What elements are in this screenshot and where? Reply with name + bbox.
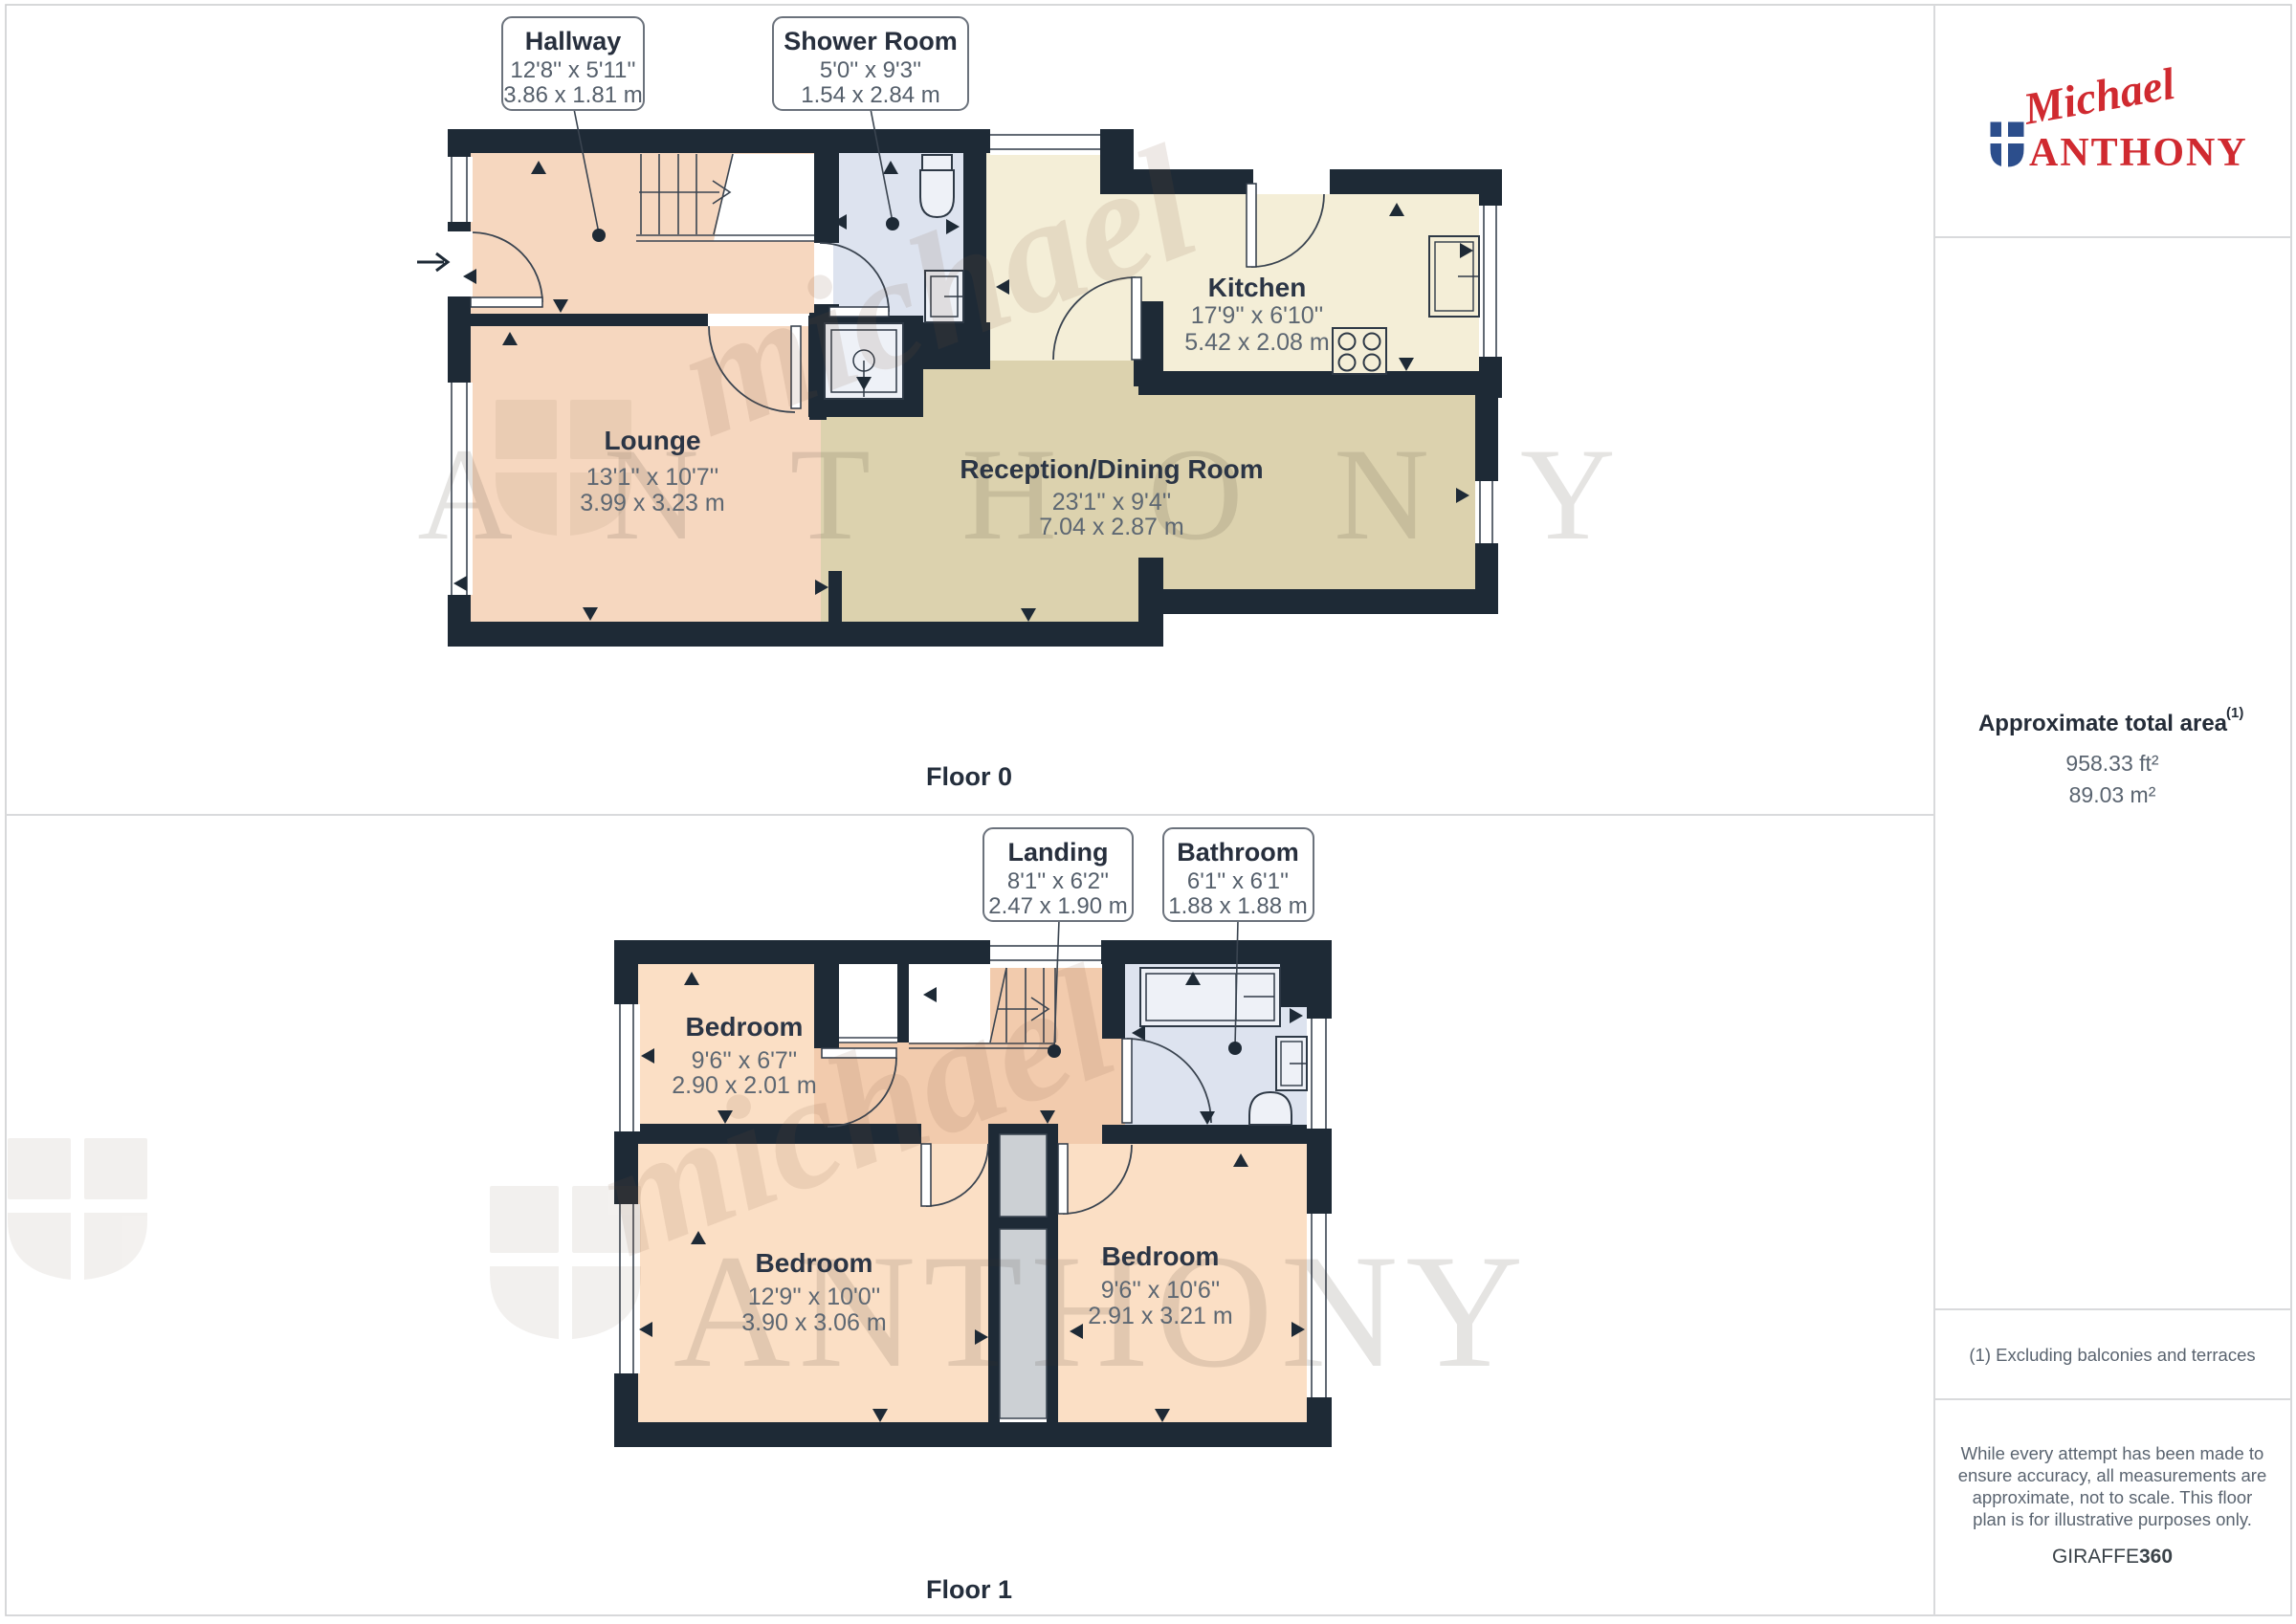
svg-text:plan is for illustrative purpo: plan is for illustrative purposes only. xyxy=(1973,1509,2252,1529)
svg-text:3.99 x 3.23 m: 3.99 x 3.23 m xyxy=(580,490,724,516)
svg-text:3.90 x 3.06 m: 3.90 x 3.06 m xyxy=(741,1309,886,1336)
svg-text:17'9'' x 6'10'': 17'9'' x 6'10'' xyxy=(1191,302,1323,329)
svg-text:While every attempt has been m: While every attempt has been made to xyxy=(1961,1443,2264,1463)
svg-text:958.33 ft²: 958.33 ft² xyxy=(2065,751,2159,776)
svg-text:1.88 x 1.88 m: 1.88 x 1.88 m xyxy=(1168,893,1307,919)
svg-text:7.04 x 2.87 m: 7.04 x 2.87 m xyxy=(1039,514,1183,540)
svg-text:6'1'' x 6'1'': 6'1'' x 6'1'' xyxy=(1187,868,1289,894)
svg-text:Bedroom: Bedroom xyxy=(756,1248,873,1278)
svg-text:approximate, not to scale. Thi: approximate, not to scale. This floor xyxy=(1973,1487,2253,1507)
svg-text:12'9'' x 10'0'': 12'9'' x 10'0'' xyxy=(748,1284,880,1310)
svg-text:13'1'' x 10'7'': 13'1'' x 10'7'' xyxy=(586,464,718,491)
svg-text:9'6'' x 10'6'': 9'6'' x 10'6'' xyxy=(1101,1277,1221,1304)
svg-text:Kitchen: Kitchen xyxy=(1208,273,1307,302)
svg-text:GIRAFFE360: GIRAFFE360 xyxy=(2052,1546,2173,1568)
svg-text:5'0'' x 9'3'': 5'0'' x 9'3'' xyxy=(820,57,921,83)
svg-text:8'1'' x 6'2'': 8'1'' x 6'2'' xyxy=(1007,868,1109,894)
svg-text:(1): (1) xyxy=(2226,705,2243,721)
svg-text:Bathroom: Bathroom xyxy=(1177,838,1299,867)
svg-text:2.90 x 2.01 m: 2.90 x 2.01 m xyxy=(672,1072,816,1099)
svg-text:2.91 x 3.21 m: 2.91 x 3.21 m xyxy=(1088,1303,1232,1329)
svg-text:Lounge: Lounge xyxy=(604,426,700,455)
svg-text:Landing: Landing xyxy=(1008,838,1109,867)
svg-text:12'8'' x 5'11'': 12'8'' x 5'11'' xyxy=(510,57,635,83)
svg-text:3.86 x 1.81 m: 3.86 x 1.81 m xyxy=(503,82,642,108)
svg-text:Reception/Dining Room: Reception/Dining Room xyxy=(960,454,1263,484)
svg-text:Hallway: Hallway xyxy=(525,27,622,55)
svg-text:89.03 m²: 89.03 m² xyxy=(2069,782,2156,807)
svg-text:2.47 x 1.90 m: 2.47 x 1.90 m xyxy=(988,893,1127,919)
svg-text:ensure accuracy, all measureme: ensure accuracy, all measurements are xyxy=(1958,1465,2267,1485)
svg-text:(1) Excluding balconies and te: (1) Excluding balconies and terraces xyxy=(1969,1345,2255,1365)
svg-text:Floor 1: Floor 1 xyxy=(926,1575,1012,1604)
svg-text:Bedroom: Bedroom xyxy=(686,1012,804,1042)
svg-text:9'6'' x 6'7'': 9'6'' x 6'7'' xyxy=(692,1047,798,1074)
svg-text:23'1'' x 9'4'': 23'1'' x 9'4'' xyxy=(1052,489,1172,516)
svg-text:1.54 x 2.84 m: 1.54 x 2.84 m xyxy=(801,82,939,108)
svg-text:Shower Room: Shower Room xyxy=(784,27,958,55)
svg-text:Bedroom: Bedroom xyxy=(1102,1241,1220,1271)
svg-text:5.42 x 2.08 m: 5.42 x 2.08 m xyxy=(1184,329,1329,356)
svg-text:Approximate total area: Approximate total area xyxy=(1978,711,2228,736)
svg-text:Floor 0: Floor 0 xyxy=(926,762,1012,791)
svg-text:ANTHONY: ANTHONY xyxy=(2029,131,2248,175)
